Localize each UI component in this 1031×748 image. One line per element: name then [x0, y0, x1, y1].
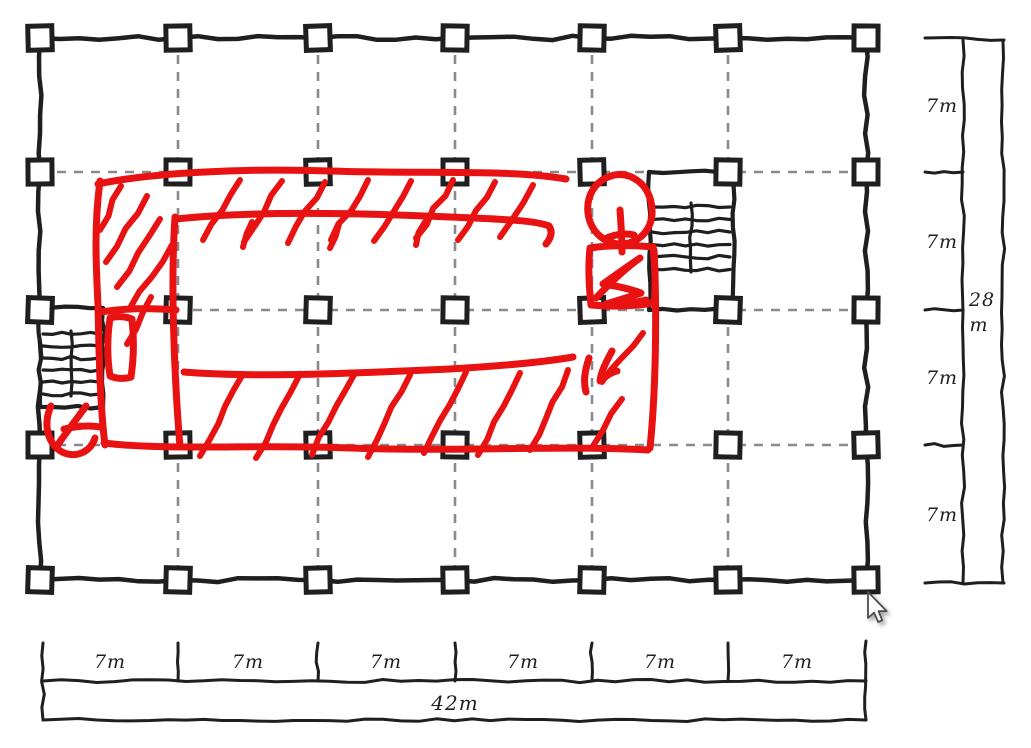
dimension-label: 7m	[926, 95, 958, 117]
column-marker	[443, 568, 467, 592]
dimension-tick	[925, 444, 963, 447]
outline-edge-bottom	[178, 578, 318, 582]
red-marker-annotation	[47, 170, 656, 458]
arrow-pointer	[868, 592, 887, 622]
dimension-line	[1002, 42, 1005, 583]
column-marker	[306, 26, 331, 51]
mouse-cursor-icon	[868, 592, 887, 622]
column-marker	[28, 568, 53, 593]
red-marker-stroke	[176, 214, 551, 245]
column-marker	[716, 568, 740, 592]
outline-edge-top	[592, 36, 728, 39]
outline-edge-right	[864, 38, 868, 172]
red-hatch-stroke	[416, 222, 425, 245]
red-hatch-stroke	[100, 186, 121, 230]
sketch-page: 7m 7m 7m 7m 28 m 7m 7m 7m 7m 7m 7m 42m	[0, 0, 1031, 748]
dimension-tick	[865, 641, 866, 720]
dimension-label: 7m	[94, 651, 126, 673]
red-hatch-stroke	[478, 373, 520, 455]
red-hatch-stroke	[500, 185, 533, 237]
dimension-total-width: 42m	[430, 691, 478, 715]
outline-edge-bottom	[318, 580, 455, 582]
dimension-line	[43, 719, 866, 722]
red-marker-stroke	[108, 317, 134, 379]
outline-edge-top	[178, 36, 318, 39]
dimension-strip-right: 7m 7m 7m 7m 28 m	[925, 38, 1005, 585]
column-marker	[854, 26, 878, 50]
column-marker	[716, 26, 741, 51]
outline-edge-top	[455, 36, 592, 40]
outline-edge-right	[866, 445, 868, 580]
outline-edge-top	[318, 36, 455, 40]
column-marker	[306, 298, 331, 323]
outline-edge-left	[39, 38, 42, 172]
dimension-label: 7m	[644, 651, 676, 673]
red-hatch-stroke	[203, 180, 240, 240]
outline-edge-bottom	[728, 579, 866, 582]
column-marker	[716, 160, 740, 184]
column-marker	[166, 568, 191, 593]
column-marker	[854, 568, 878, 592]
dimension-label: 7m	[507, 651, 539, 673]
outline-edge-top	[728, 37, 866, 40]
outline-edge-left	[38, 445, 41, 580]
red-hatch-stroke	[593, 399, 622, 446]
red-hatch-stroke	[458, 182, 495, 240]
dimension-tick	[455, 643, 456, 681]
column-marker	[443, 26, 467, 50]
red-marker-stroke	[607, 234, 634, 238]
stair-right-wall	[733, 172, 735, 310]
column-marker	[443, 433, 467, 457]
outline-edge-right	[865, 172, 868, 310]
dimension-label: 7m	[781, 651, 813, 673]
outline-edge-left	[38, 172, 40, 310]
dimension-label: 7m	[926, 367, 958, 389]
outline-edge-bottom	[455, 578, 592, 582]
dimension-tick	[590, 643, 592, 681]
column-marker	[716, 298, 741, 323]
dimension-tick	[925, 309, 963, 311]
red-hatch-stroke	[530, 370, 568, 450]
dimension-tick	[728, 643, 729, 681]
outline-edge-bottom	[592, 578, 728, 581]
outline-edge-right	[864, 310, 868, 445]
dimension-label: 7m	[232, 651, 264, 673]
column-marker	[28, 298, 53, 323]
column-marker	[854, 160, 878, 184]
stair-divider	[71, 331, 72, 396]
column-marker	[854, 298, 878, 322]
outline-edge-bottom	[40, 578, 178, 582]
column-marker	[580, 26, 604, 50]
dimension-tick	[925, 172, 963, 174]
column-marker	[166, 26, 190, 50]
column-marker	[580, 568, 605, 593]
red-marker-stroke	[585, 358, 589, 392]
column-marker	[716, 433, 740, 457]
column-marker	[306, 568, 331, 593]
dimension-tick	[316, 643, 318, 681]
red-marker-stroke	[100, 309, 176, 312]
dimension-total-depth-unit: m	[969, 314, 988, 336]
dimension-tick	[178, 643, 179, 681]
dimension-label: 7m	[926, 231, 958, 253]
floor-plan-sketch-canvas[interactable]: 7m 7m 7m 7m 28 m 7m 7m 7m 7m 7m 7m 42m	[0, 0, 1031, 748]
column-marker	[854, 433, 879, 458]
dimension-total-depth: 28	[968, 289, 995, 311]
dimension-strip-bottom: 7m 7m 7m 7m 7m 7m 42m	[42, 641, 866, 722]
column-marker	[28, 26, 53, 51]
outline-edge-top	[40, 36, 178, 39]
dimension-label: 7m	[370, 651, 402, 673]
dimension-label: 7m	[926, 504, 958, 526]
column-marker	[28, 160, 52, 184]
column-marker	[443, 298, 467, 322]
